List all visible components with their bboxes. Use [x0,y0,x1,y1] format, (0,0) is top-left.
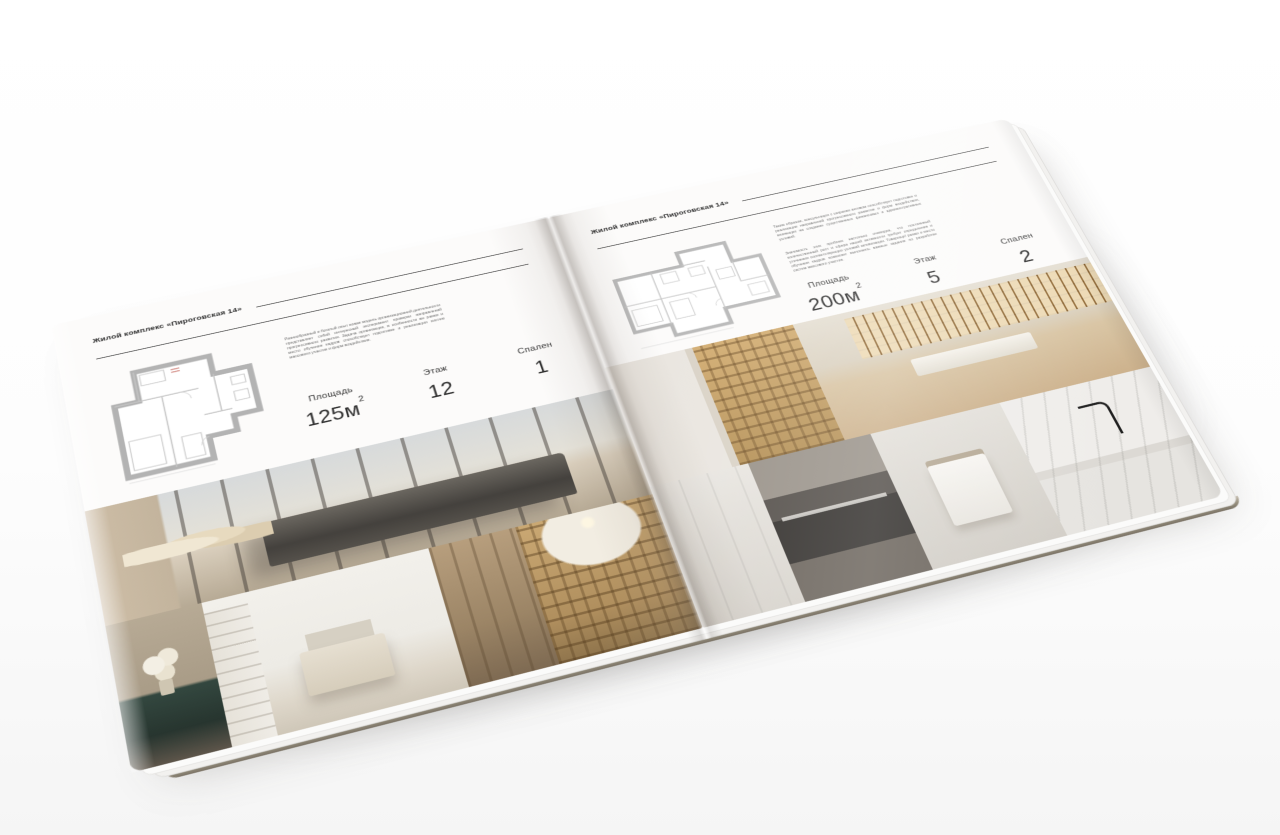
brochure-spread: Жилой комплекс «Пироговская 14» [51,118,1224,772]
stat-floor: Этаж 5 [899,251,963,293]
stat-floor: Этаж 12 [408,361,471,406]
stat-area-sup: 2 [357,394,365,403]
floorplan-125m2-drawing [92,337,285,492]
stat-floor-value: 12 [412,375,470,406]
header-rule [742,147,989,201]
page-title: Жилой комплекс «Пироговская 14» [590,199,730,236]
stat-area-number: 125м [304,399,363,430]
floorplan-125m2 [92,337,285,492]
stat-bedrooms: Спален 1 [508,339,571,384]
left-page-header: Жилой комплекс «Пироговская 14» [92,244,524,345]
backdrop: Жилой комплекс «Пироговская 14» [0,0,1280,835]
stat-area-value: 125м2 [304,398,369,431]
stat-bedrooms: Спален 2 [991,230,1055,271]
stat-area: Площадь 125м2 [300,384,369,432]
page-title: Жилой комплекс «Пироговская 14» [92,305,243,345]
stat-bedrooms-value: 1 [513,352,571,383]
header-rule [256,249,523,308]
